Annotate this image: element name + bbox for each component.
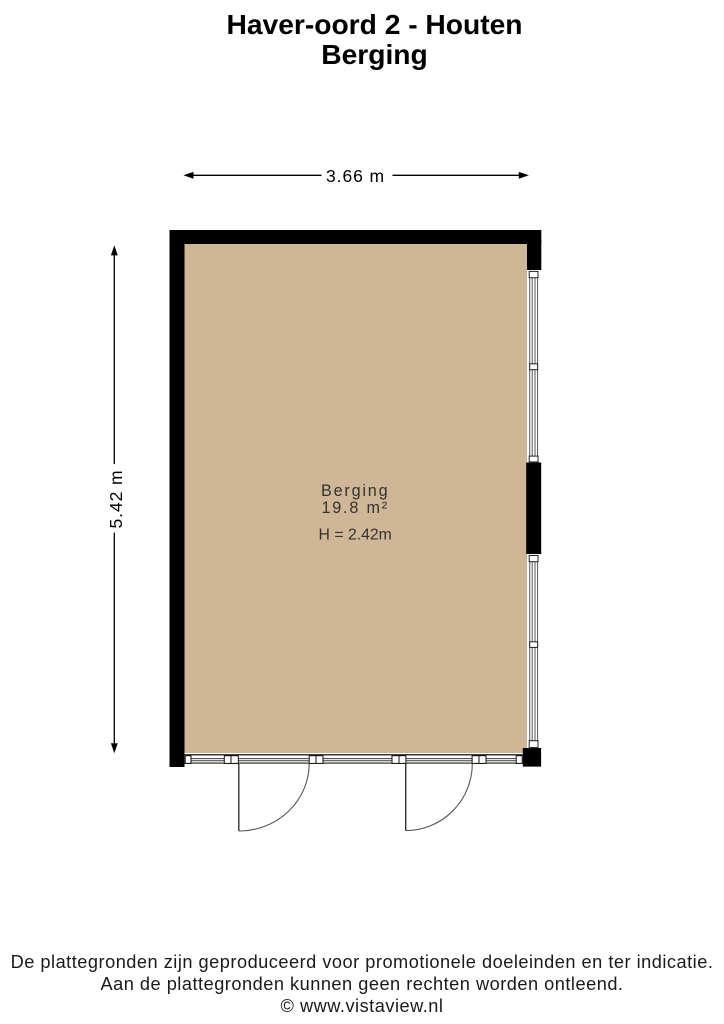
svg-text:De plattegronden zijn geproduc: De plattegronden zijn geproduceerd voor … <box>11 952 714 972</box>
svg-text:Berging: Berging <box>321 482 389 500</box>
svg-text:5.42 m: 5.42 m <box>106 470 126 529</box>
svg-text:Haver-oord 2 - Houten: Haver-oord 2 - Houten <box>227 8 523 40</box>
svg-text:© www.vistaview.nl: © www.vistaview.nl <box>281 996 444 1016</box>
svg-text:Berging: Berging <box>321 38 428 70</box>
svg-text:H = 2.42m: H = 2.42m <box>319 527 392 544</box>
svg-text:Aan de plattegronden kunnen ge: Aan de plattegronden kunnen geen rechten… <box>101 974 624 994</box>
svg-text:3.66 m: 3.66 m <box>326 166 385 186</box>
svg-text:19.8 m²: 19.8 m² <box>321 499 388 517</box>
